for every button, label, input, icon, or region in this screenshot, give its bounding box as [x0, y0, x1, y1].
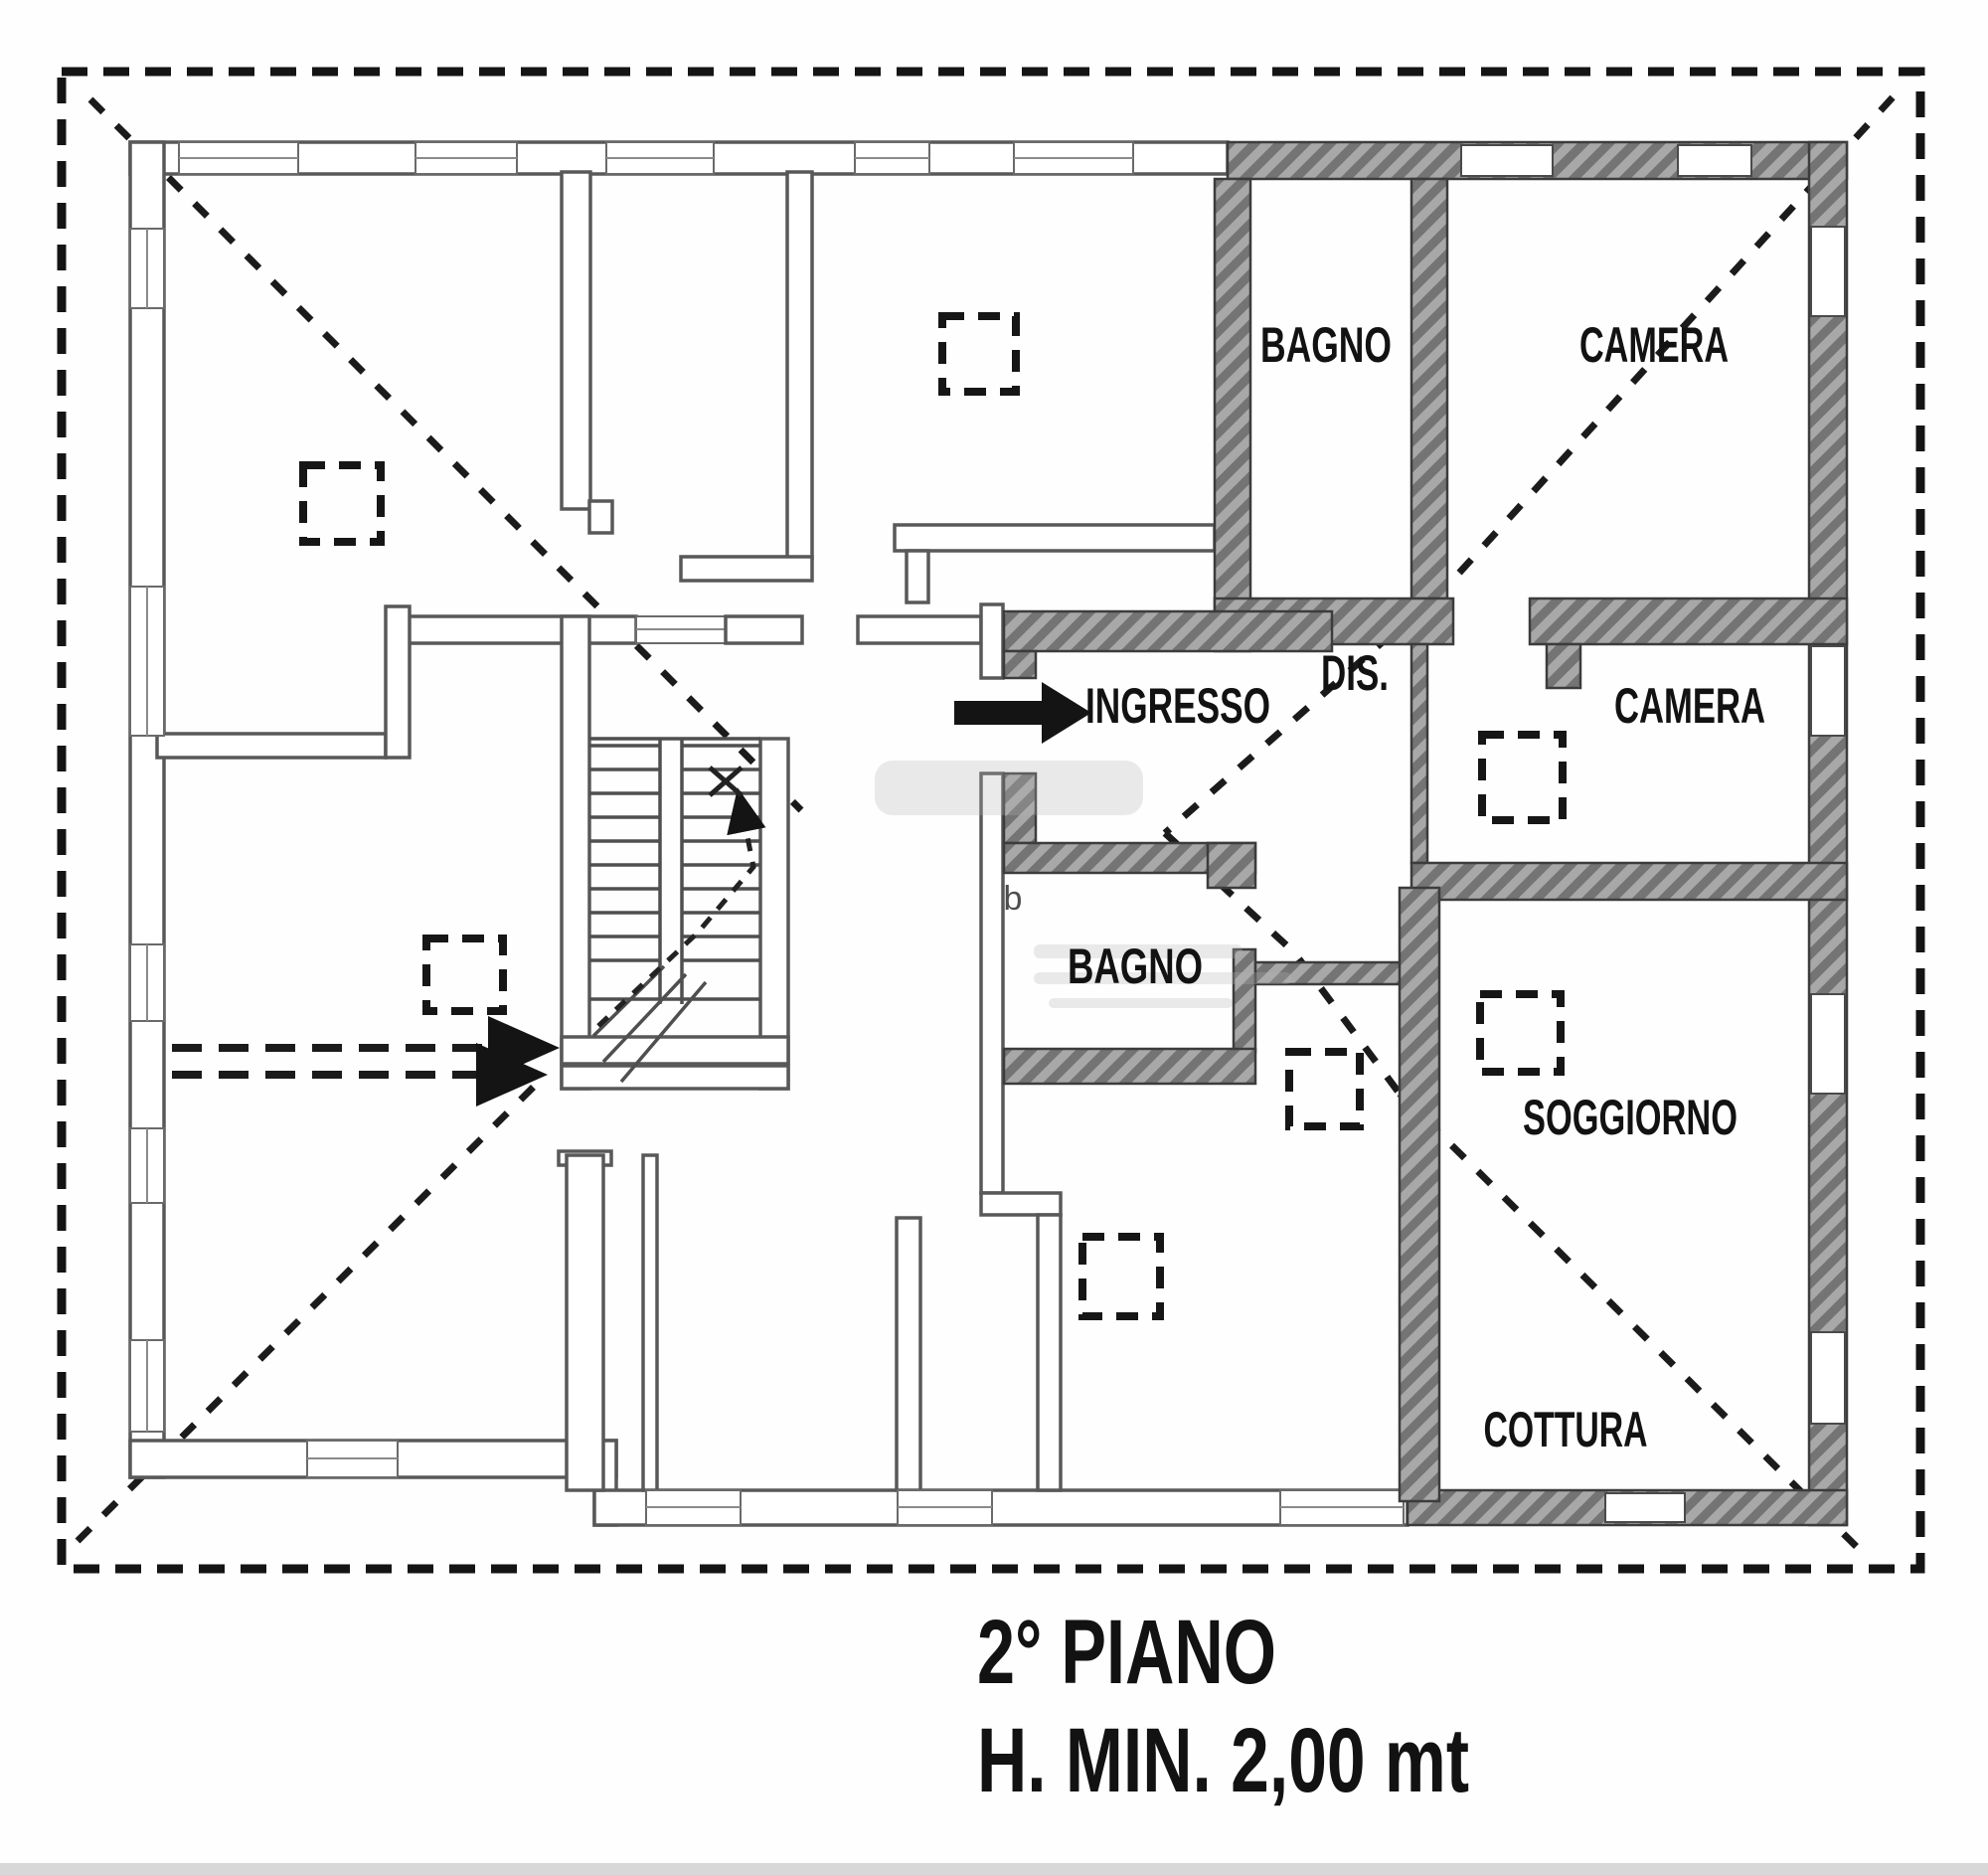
door-letter-annotation: b: [1004, 880, 1023, 918]
caption-group: 2° PIANO H. MIN. 2,00 mt: [977, 1602, 1469, 1811]
window: [1461, 145, 1553, 176]
window: [130, 1340, 164, 1432]
roof-window: [942, 316, 1016, 392]
staircase: [562, 616, 788, 1089]
partition-wall: [567, 1155, 603, 1490]
partition-wall: [981, 773, 1003, 1193]
window: [646, 1490, 741, 1525]
window: [606, 142, 714, 174]
apartment-wall-right: [1809, 142, 1847, 1525]
window: [1678, 145, 1751, 176]
partition-wall: [897, 1218, 920, 1490]
window: [1811, 227, 1845, 316]
roof-hip-bottom-right: [1400, 1094, 1861, 1551]
partition-wall-nub: [589, 501, 612, 533]
window: [130, 1128, 164, 1203]
roof-window: [1082, 1237, 1160, 1316]
room-label-dis: DIS.: [1321, 645, 1389, 701]
apartment-wall: [1208, 843, 1255, 888]
partition-wall: [643, 1155, 657, 1490]
window: [179, 142, 298, 174]
window: [130, 944, 164, 1021]
apartment-wall: [1411, 644, 1427, 863]
room-label-ingresso: INGRESSO: [1085, 678, 1270, 734]
partition-wall: [787, 172, 812, 559]
window: [1014, 142, 1133, 174]
apartment-wall: [1004, 651, 1036, 678]
partition-wall: [895, 525, 1215, 551]
room-label-camera-top: CAMERA: [1579, 317, 1729, 373]
stair-treads: [589, 746, 760, 1082]
window: [898, 1490, 992, 1525]
exterior-wall-left: [130, 142, 164, 1477]
apartment-wall: [1411, 863, 1847, 900]
window: [130, 587, 164, 736]
entrance-arrow-icon: [954, 682, 1091, 744]
apartment-wall: [1411, 179, 1447, 598]
roof-window: [1482, 735, 1563, 820]
partition-wall-foot: [681, 557, 812, 581]
window: [1605, 1493, 1685, 1522]
stair-wall-bottom: [562, 1037, 788, 1064]
window: [130, 229, 164, 308]
apartment-wall: [1234, 949, 1255, 1052]
room-label-bagno-center: BAGNO: [1068, 938, 1203, 994]
room-label-camera-right: CAMERA: [1614, 678, 1765, 734]
partition-wall: [981, 604, 1003, 678]
room-label-cottura: COTTURA: [1484, 1402, 1648, 1457]
door-jamb: [907, 551, 928, 602]
partition-wall: [562, 172, 590, 509]
apartment-wall: [1004, 611, 1332, 651]
apartment-wall: [1400, 888, 1439, 1501]
scan-edge-strip: [0, 1863, 1988, 1875]
stair-arrival-mark: [710, 767, 742, 795]
caption-floor: 2° PIANO: [977, 1602, 1276, 1703]
apartment-wall: [1530, 598, 1847, 644]
roof-hip-top-left: [90, 99, 801, 810]
partition-wall: [157, 734, 386, 758]
window: [1811, 646, 1845, 736]
window: [307, 1441, 398, 1477]
floor-plan-page: BAGNO CAMERA DIS. INGRESSO CAMERA BAGNO …: [0, 0, 1988, 1875]
floor-plan-drawing: BAGNO CAMERA DIS. INGRESSO CAMERA BAGNO …: [0, 0, 1988, 1875]
roof-window: [1480, 994, 1561, 1072]
caption-height: H. MIN. 2,00 mt: [977, 1710, 1469, 1811]
door-jamb: [1547, 644, 1580, 688]
roof-window: [1289, 1052, 1360, 1126]
roof-hip-top-right: [1165, 97, 1893, 833]
corridor-wall: [858, 616, 981, 643]
room-label-soggiorno: SOGGIORNO: [1523, 1090, 1738, 1145]
window: [1811, 994, 1845, 1094]
stair-wall-left: [562, 616, 589, 1089]
window: [855, 142, 929, 174]
corridor-wall: [726, 616, 802, 643]
apartment-wall: [1215, 179, 1250, 651]
partition-wall-lip: [981, 1193, 1061, 1215]
corridor-wall: [408, 616, 636, 643]
partition-wall: [1038, 1215, 1061, 1490]
roof-window: [303, 465, 381, 542]
apartment-wall: [1004, 1049, 1255, 1084]
roof-window: [426, 938, 503, 1011]
stair-wall-bottom: [562, 1066, 788, 1089]
roof-windows-group: [303, 316, 1563, 1316]
room-label-bagno-top: BAGNO: [1260, 317, 1392, 373]
window: [1811, 1332, 1845, 1424]
window: [415, 142, 517, 174]
window: [1280, 1490, 1404, 1525]
partition-wall: [386, 606, 410, 758]
